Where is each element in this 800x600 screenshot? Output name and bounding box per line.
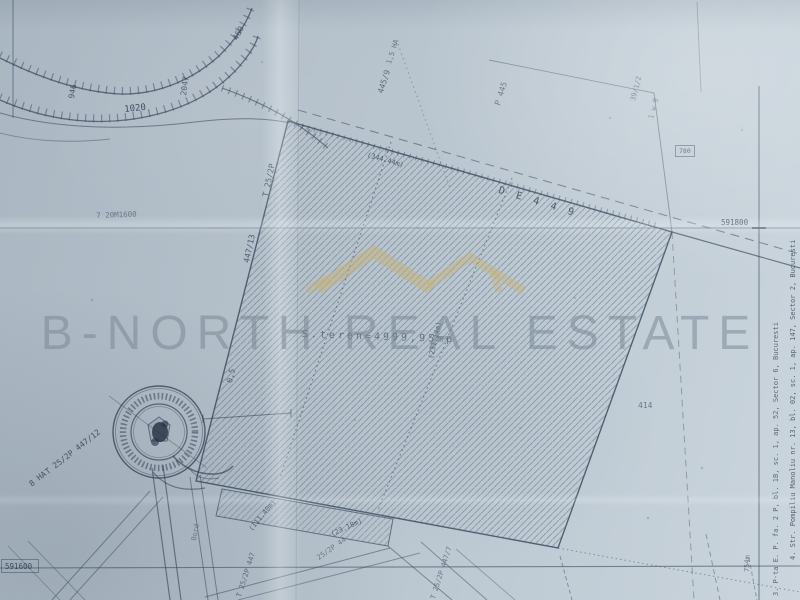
- bottom-parcel-label: 25/2P 44: [316, 537, 348, 562]
- parcel-edge-label-44713: 447/13: [243, 234, 257, 264]
- fold-band-horizontal: [0, 216, 800, 234]
- note-39-1-2: 39/1/2: [630, 76, 643, 102]
- address-line-2: 3. P-ta E. P. fa. 2 P, bl. 1B, sc. 1, ap…: [773, 322, 780, 596]
- note-414: 414: [638, 402, 652, 410]
- contour-label-1020: 1020: [124, 104, 147, 115]
- parcel-label-p445: P 445: [494, 81, 509, 106]
- grid-label-591600: 591600: [5, 563, 32, 571]
- address-line-1: 4. Str. Pompiliu Manoliu nr. 13, bl. 02,…: [790, 240, 797, 560]
- bottom-parcel-label: T 25/2P 447: [236, 552, 257, 598]
- contour-label-946: 946: [68, 84, 78, 100]
- note-780: 780: [679, 148, 691, 155]
- parcel-label-445-9: 445/9: [377, 69, 392, 94]
- map-annotations: 946102020474607 20M1600T 25/2P447/131,5 …: [0, 0, 800, 600]
- road-label-bord: Bord: [191, 523, 201, 541]
- fold-band-vertical: [262, 0, 302, 600]
- contour-label-460: 460: [232, 25, 246, 42]
- fold-band-horizontal-lower: [0, 494, 800, 506]
- dim-23-18m: (23.18m): [330, 518, 364, 539]
- dim-754m: 754m: [744, 555, 752, 572]
- area-label-8ha: 8 HA: [28, 470, 48, 488]
- contour-label-2047: 2047: [180, 76, 191, 96]
- scanned-cadastral-map: 946102020474607 20M1600T 25/2P447/131,5 …: [0, 0, 800, 600]
- dim-344-44m: (344.44m): [366, 152, 404, 169]
- road-label-de449: D E 4 4 9: [497, 186, 578, 219]
- parcel-label-447-12: T 25/2P 447/12: [44, 428, 102, 476]
- area-label-15ha: 1,5 HA: [386, 39, 400, 65]
- bottom-parcel-label: T 25/2P 447/7: [430, 546, 454, 600]
- note-1w9: 1 w 9: [648, 98, 660, 120]
- note-0-5: 0,5: [226, 368, 237, 384]
